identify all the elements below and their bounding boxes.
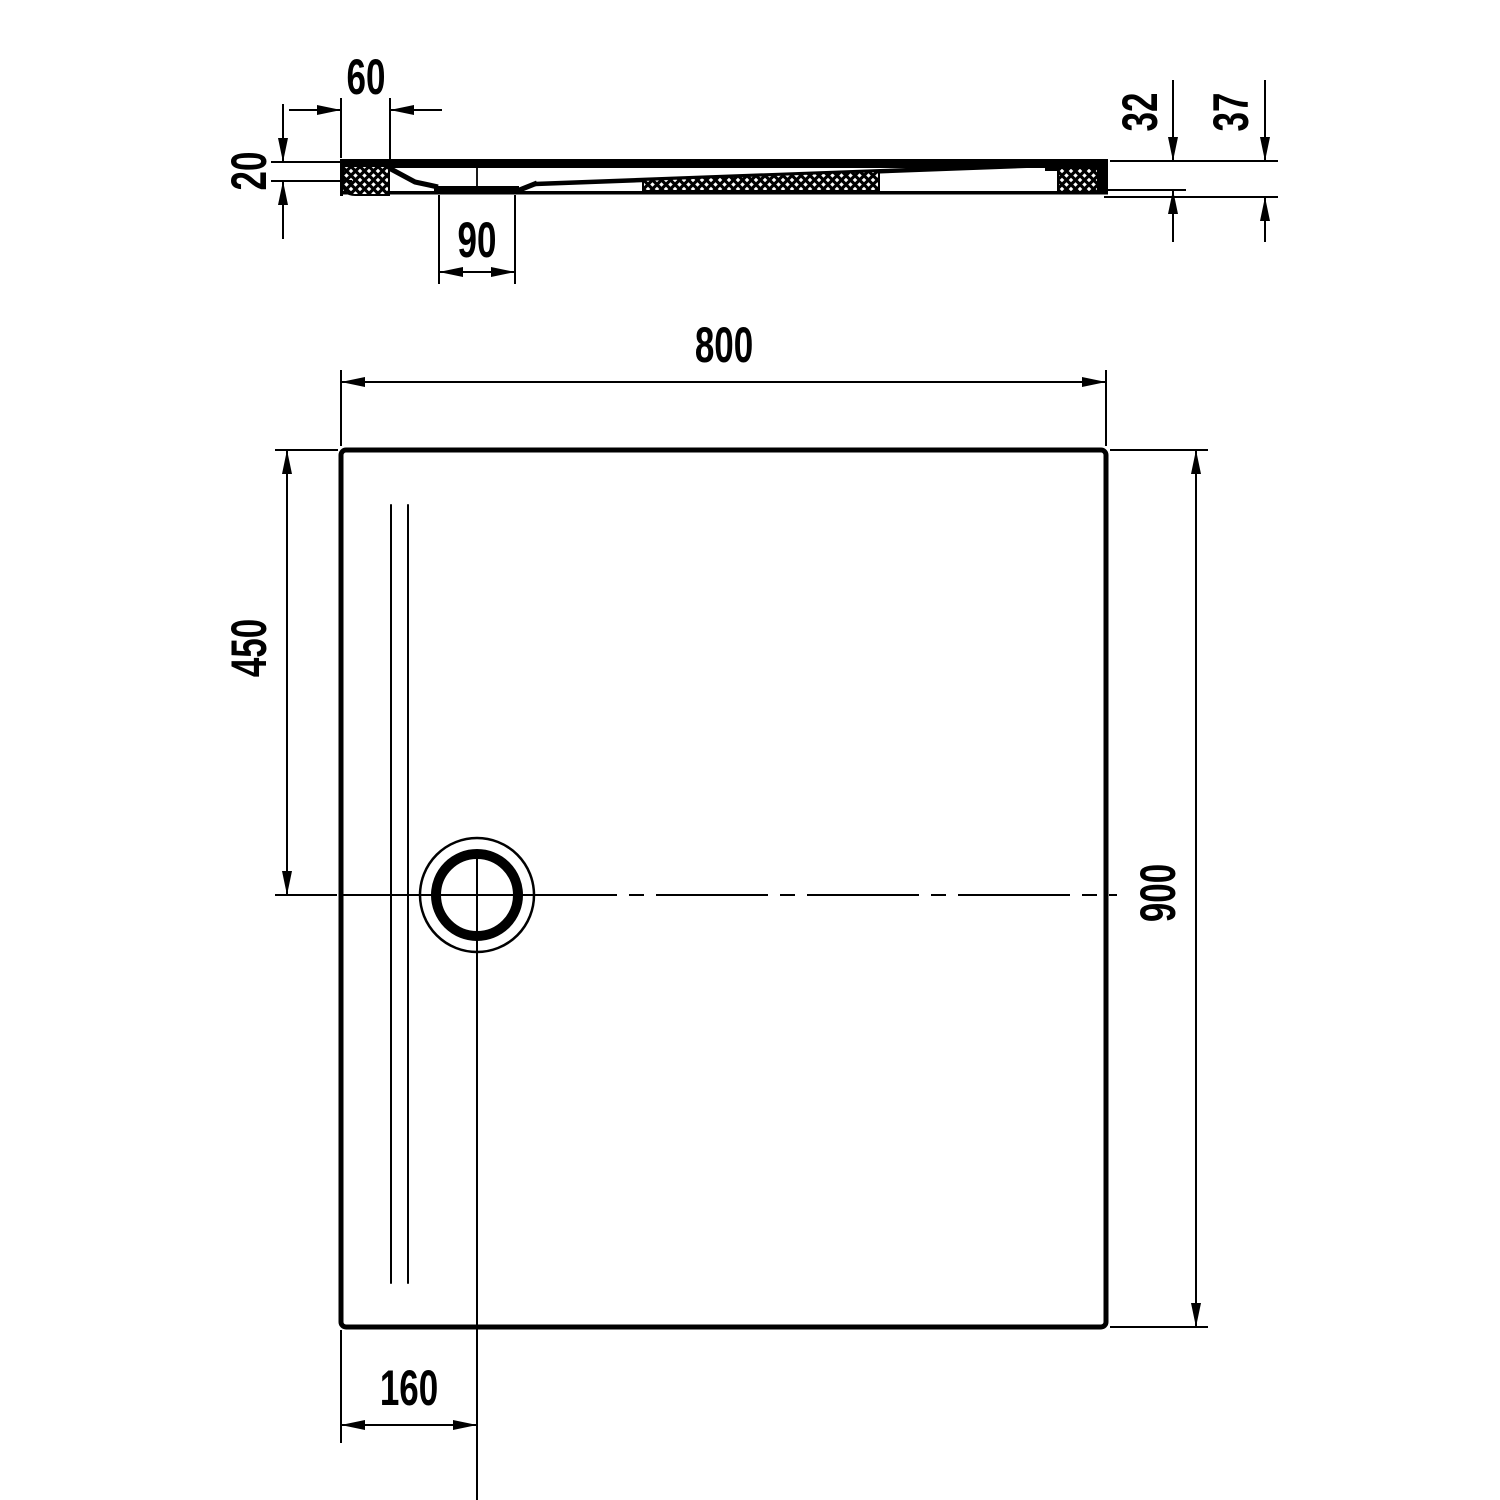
arrowhead — [1168, 190, 1178, 214]
dim-label-32: 32 — [1113, 93, 1169, 132]
dim-label-60: 60 — [347, 50, 386, 106]
arrowhead — [1082, 377, 1106, 387]
section-drain-right-wall — [517, 183, 537, 191]
dim-label-450: 450 — [222, 619, 278, 677]
section-right-end-cap — [1097, 159, 1108, 194]
arrowhead — [1260, 137, 1270, 161]
dim-label-160: 160 — [380, 1361, 438, 1417]
arrowhead — [453, 1420, 477, 1430]
dim-800: 800 — [341, 318, 1106, 446]
dim-20: 20 — [222, 104, 352, 239]
section-profile — [340, 159, 1108, 196]
arrowhead — [390, 105, 414, 115]
arrowhead — [1191, 450, 1201, 474]
tray-outline — [341, 450, 1106, 1327]
arrowhead — [1168, 137, 1178, 161]
dim-450: 450 — [222, 450, 338, 895]
plan-view: 800 450 900 160 — [222, 318, 1208, 1500]
arrowhead — [341, 377, 365, 387]
arrowhead — [317, 105, 341, 115]
dim-label-800: 800 — [695, 318, 753, 374]
section-view: 60 20 90 — [222, 50, 1278, 284]
technical-drawing-canvas: 60 20 90 — [0, 0, 1500, 1500]
dim-60: 60 — [289, 50, 442, 171]
arrowhead — [1191, 1303, 1201, 1327]
arrowhead — [282, 450, 292, 474]
section-drain-left-wall — [389, 168, 438, 187]
section-right-gasket-hatch — [1058, 168, 1102, 192]
dim-label-900: 900 — [1131, 864, 1187, 922]
dim-90: 90 — [439, 195, 515, 284]
dim-900: 900 — [1110, 450, 1208, 1327]
arrowhead — [1260, 197, 1270, 221]
arrowhead — [282, 871, 292, 895]
arrowhead — [278, 181, 288, 205]
arrowhead — [341, 1420, 365, 1430]
arrowhead — [278, 138, 288, 162]
dim-label-90: 90 — [458, 213, 497, 269]
dim-label-37: 37 — [1204, 93, 1260, 132]
dim-160: 160 — [341, 1330, 477, 1443]
shower-tray-drawing: 60 20 90 — [0, 0, 1500, 1500]
dim-label-20: 20 — [222, 152, 278, 191]
